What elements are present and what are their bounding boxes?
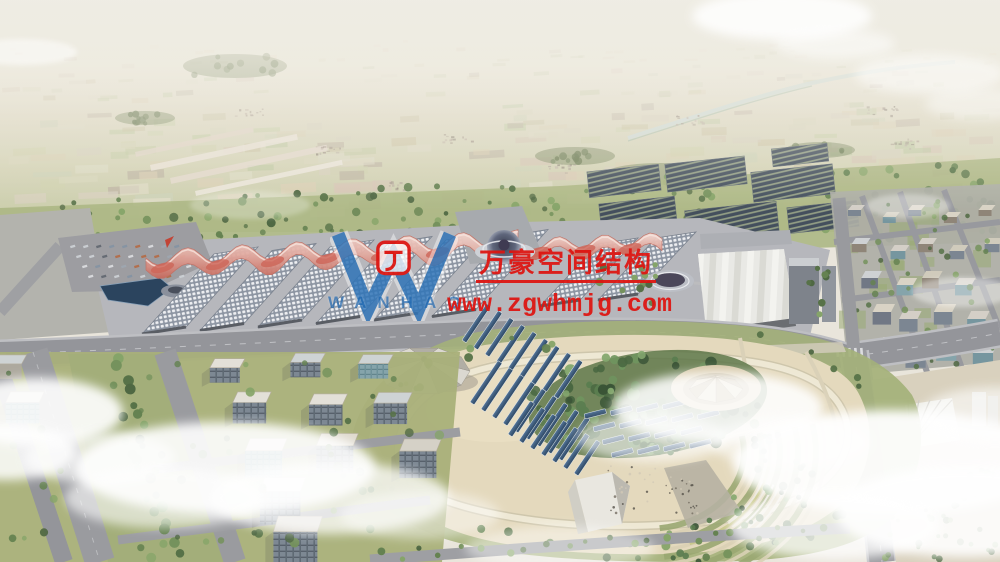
watermark-title: 万豪空间结构: [476, 248, 656, 283]
rendering-stage: WANHAO 万豪空间结构 www.zgwhmjg.com: [0, 0, 1000, 562]
watermark: WANHAO 万豪空间结构 www.zgwhmjg.com: [0, 0, 1000, 562]
watermark-url: www.zgwhmjg.com: [447, 290, 672, 319]
